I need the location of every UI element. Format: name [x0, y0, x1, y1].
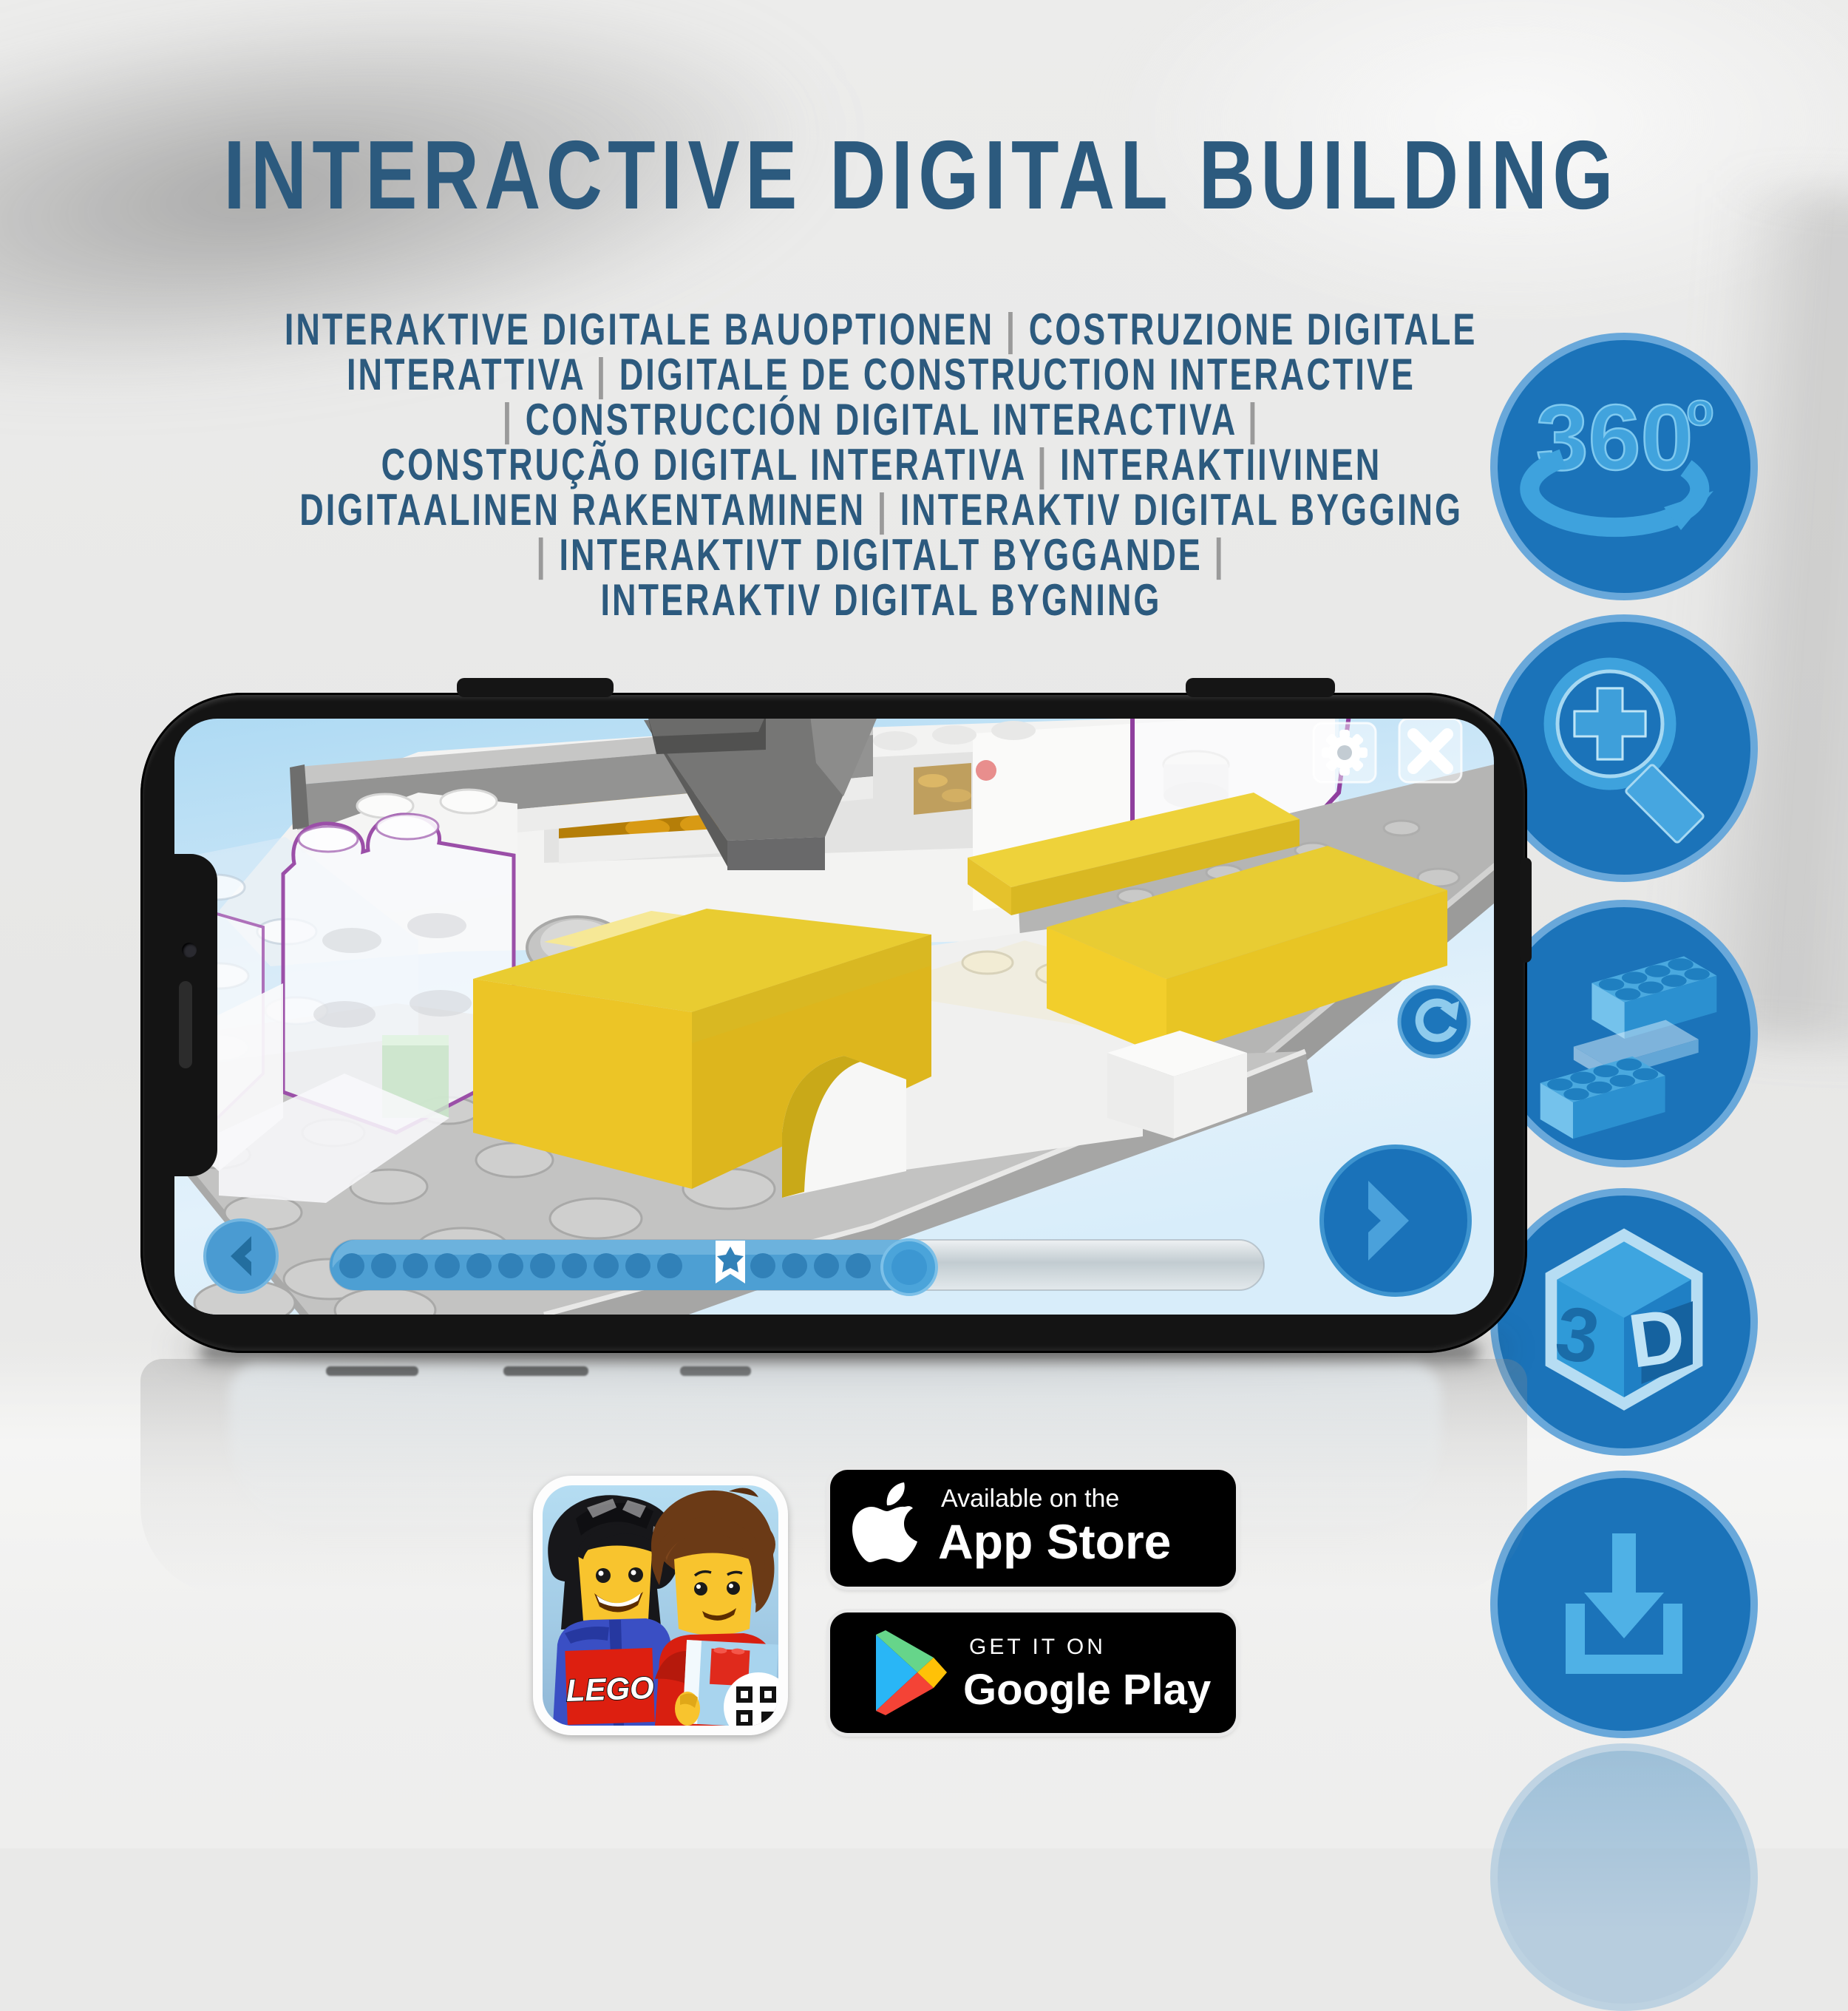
- svg-text:360: 360: [1536, 386, 1694, 489]
- svg-text:LEGO: LEGO: [565, 1670, 655, 1708]
- svg-text:App Store: App Store: [938, 1514, 1171, 1569]
- svg-text:Available on the: Available on the: [941, 1485, 1119, 1513]
- svg-text:Google Play: Google Play: [963, 1666, 1211, 1714]
- svg-text:D: D: [1624, 1292, 1691, 1384]
- svg-text:GET IT ON: GET IT ON: [969, 1635, 1106, 1659]
- svg-text:o: o: [1686, 384, 1714, 435]
